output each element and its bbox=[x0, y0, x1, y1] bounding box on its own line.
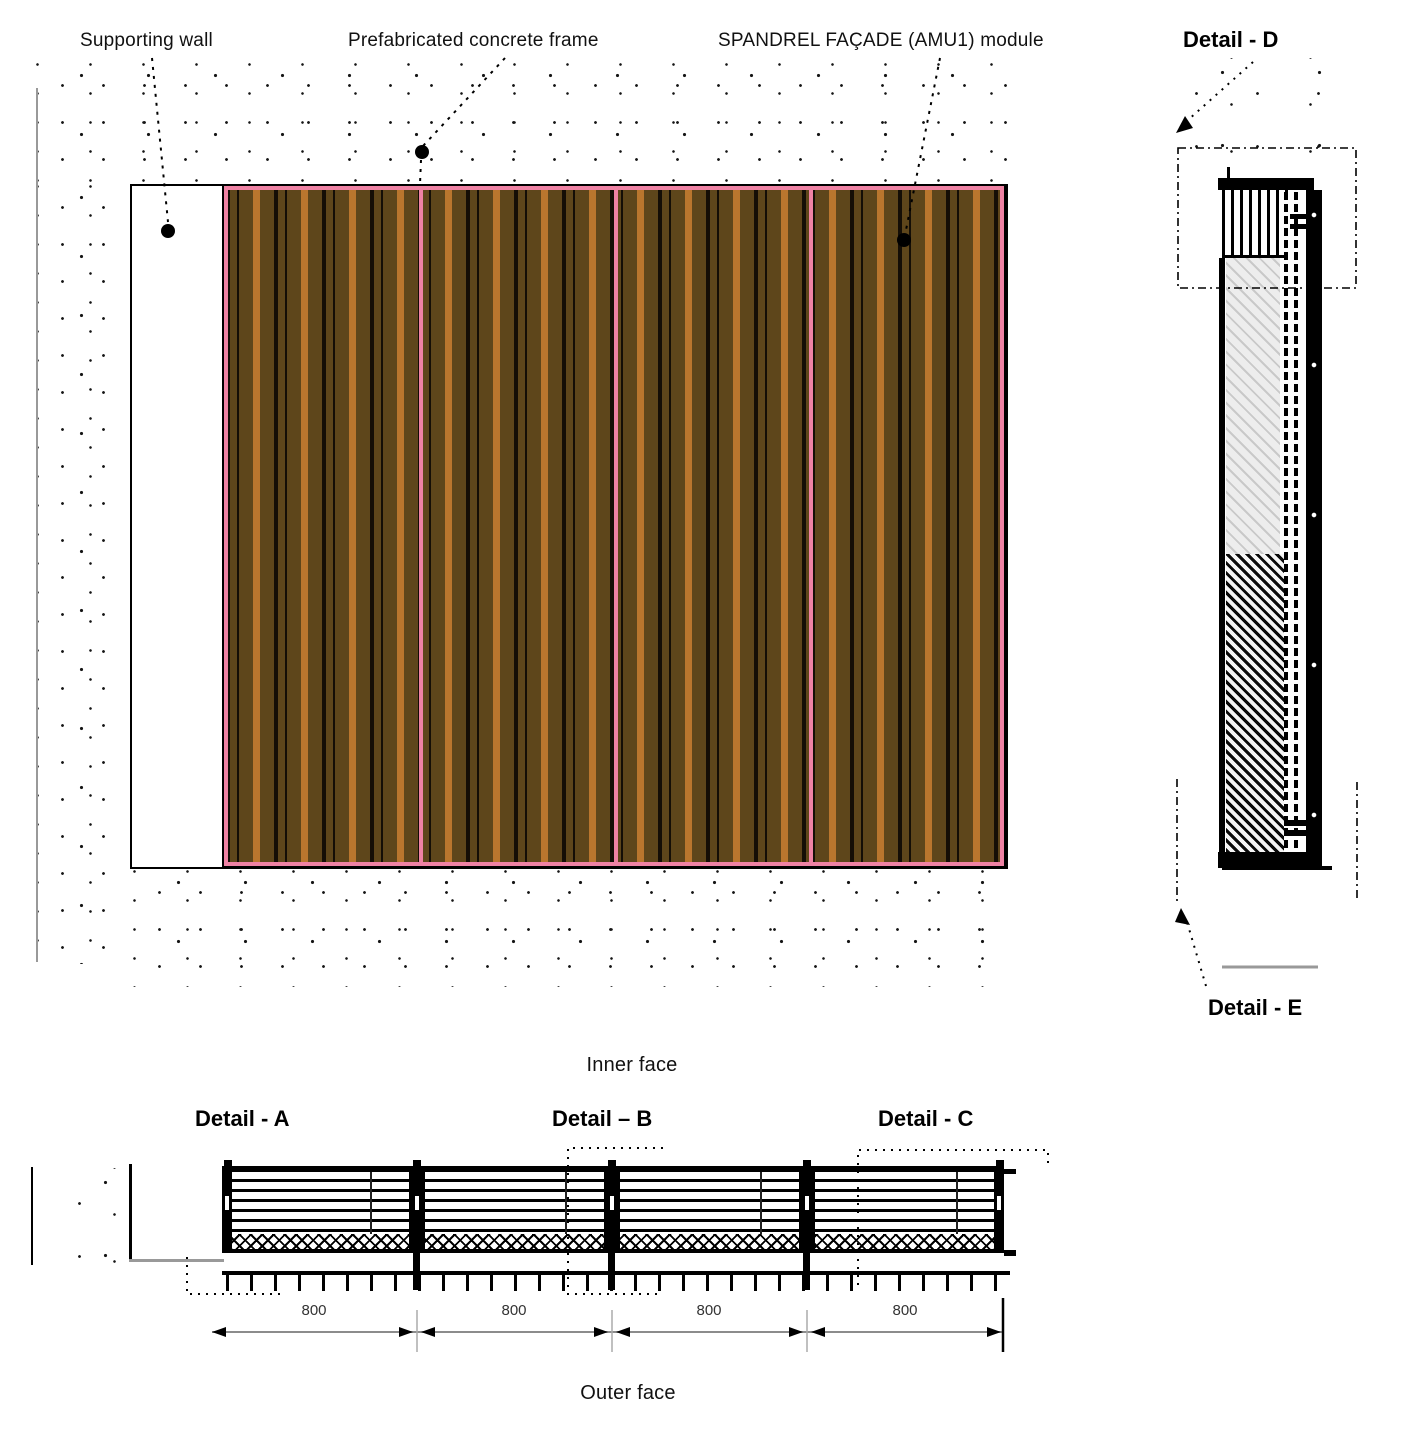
dim-arrow-1a bbox=[399, 1327, 413, 1337]
detail-e-leader bbox=[1187, 922, 1206, 986]
dim-arrow-2a bbox=[594, 1327, 608, 1337]
spandrel-module-leader bbox=[906, 58, 940, 230]
detail-d-leader bbox=[1188, 62, 1253, 120]
concrete-frame-leader-2 bbox=[420, 160, 421, 184]
concrete-frame-leader-dot bbox=[415, 145, 429, 159]
detail-d-arrow bbox=[1176, 116, 1193, 133]
supporting-wall-leader bbox=[152, 58, 168, 222]
dim-arrow-3b bbox=[811, 1327, 825, 1337]
dim-arrow-3a bbox=[789, 1327, 803, 1337]
detail-e-arrow bbox=[1175, 908, 1190, 925]
spandrel-module-leader-dot bbox=[897, 233, 911, 247]
detail-c-callout bbox=[858, 1150, 1048, 1285]
dim-arrow-left-end bbox=[212, 1327, 226, 1337]
concrete-frame-leader bbox=[423, 58, 505, 146]
linework-overlay bbox=[0, 0, 1410, 1432]
dim-arrow-1b bbox=[421, 1327, 435, 1337]
detail-b-callout bbox=[568, 1148, 663, 1294]
facade-drawing: Supporting wall Prefabricated concrete f… bbox=[0, 0, 1410, 1432]
supporting-wall-leader-dot bbox=[161, 224, 175, 238]
detail-d-callout-box bbox=[1178, 148, 1356, 288]
dim-arrow-right-end bbox=[987, 1327, 1001, 1337]
detail-a-callout bbox=[187, 1257, 284, 1294]
dim-arrow-2b bbox=[616, 1327, 630, 1337]
